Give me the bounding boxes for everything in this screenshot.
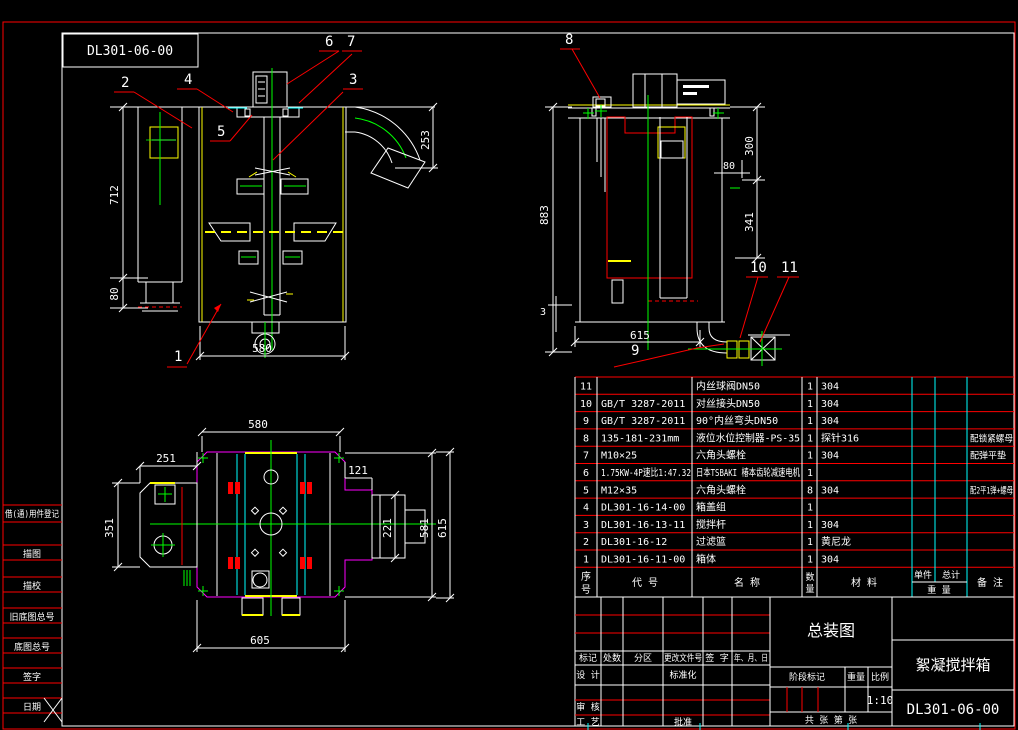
bom-header-name: 名 称 (734, 576, 760, 589)
dim-side-top: 300 (743, 136, 756, 156)
sheet-info: 共 张 第 张 (805, 714, 857, 726)
bom-cell-name: 六角头螺栓 (696, 483, 746, 496)
dim-side-gap: 3 (540, 307, 546, 318)
bom-cell-no: 8 (583, 433, 589, 444)
margin-field-label: 签字 (23, 671, 41, 683)
bom-cell-no: 3 (583, 520, 589, 531)
dim-plan-left-w: 251 (156, 452, 176, 465)
plan-view: 580 251 351 121 221 581 615 605 (103, 418, 454, 652)
bom-cell-name: 六角头螺栓 (696, 449, 746, 462)
dim-plan-right-h: 221 (381, 518, 394, 538)
callout-10: 10 (750, 260, 767, 276)
bom-header-weight: 重 量 (927, 584, 950, 596)
bom-cell-qty: 1 (807, 468, 813, 479)
bom-cell-qty: 8 (807, 485, 813, 496)
dim-side-nozzle: 80 (723, 161, 735, 172)
bom-cell-qty: 1 (807, 503, 813, 514)
drawing-canvas: 借(通)用件登记描图描校旧底图总号底图总号签字日期 DL301-06-00 (0, 0, 1018, 730)
bom-cell-code: DL301-16-13-11 (601, 520, 685, 531)
bom-cell-remark: 配弹平垫 (970, 450, 1006, 462)
weight-label: 重量 (847, 671, 865, 683)
dim-side-height: 883 (538, 205, 551, 225)
rev-header-sign: 签 字 (705, 652, 728, 664)
callout-9: 9 (631, 343, 639, 359)
bom-cell-no: 9 (583, 416, 589, 427)
bom-cell-material: 探针316 (821, 431, 859, 444)
bom-cell-no: 10 (580, 399, 592, 410)
role-approve: 批准 (674, 716, 692, 728)
margin-field-label: 底图总号 (14, 641, 50, 653)
bom-cell-no: 4 (583, 503, 589, 514)
bom-cell-material: 304 (821, 451, 839, 462)
dim-front-elbow: 253 (419, 130, 432, 150)
bom-cell-qty: 1 (807, 382, 813, 393)
bom-cell-no: 2 (583, 537, 589, 548)
bom-cell-name: 过滤篮 (696, 535, 726, 548)
bom-cell-remark: 配锁紧螺母 (970, 432, 1013, 444)
callout-5: 5 (217, 124, 225, 140)
bom-header-unit: 单件 (914, 569, 932, 581)
dim-plan-top: 580 (248, 418, 268, 431)
bom-cell-name: 箱盖组 (696, 501, 726, 514)
product-name: 絮凝搅拌箱 (915, 656, 990, 674)
callout-4: 4 (184, 72, 192, 88)
bom-cell-name: 搅拌杆 (696, 518, 726, 531)
callout-3: 3 (349, 72, 357, 88)
rev-header-zone: 分区 (634, 653, 652, 664)
bom-cell-material: 304 (821, 485, 839, 496)
bom-cell-material: 黄尼龙 (821, 535, 851, 548)
bom-cell-code: 1.75KW-4P速比1:47.32 (601, 467, 691, 479)
bom-cell-no: 5 (583, 485, 589, 496)
dim-plan-outer-h: 615 (436, 518, 449, 538)
margin-field-label: 描校 (23, 580, 41, 592)
rev-header-count: 处数 (603, 652, 621, 664)
bom-cell-code: M12×35 (601, 485, 637, 496)
callout-6: 6 (325, 34, 333, 50)
callout-2: 2 (121, 75, 129, 91)
dim-front-height: 712 (108, 185, 121, 205)
bom-cell-name: 对丝接头DN50 (696, 397, 760, 410)
dim-side-width: 615 (630, 329, 650, 342)
bom-cell-name: 90°内丝弯头DN50 (696, 414, 778, 427)
dim-side-mid: 341 (743, 212, 756, 232)
bom-cell-qty: 1 (807, 520, 813, 531)
bom-cell-code: M10×25 (601, 451, 637, 462)
callout-8: 8 (565, 32, 573, 48)
bom-cell-no: 1 (583, 555, 589, 566)
rev-header-docno: 更改文件号 (664, 652, 702, 664)
bom-cell-name: 内丝球阀DN50 (696, 380, 760, 393)
margin-field-label: 旧底图总号 (9, 611, 54, 623)
bom-header-no: 序 (581, 570, 591, 583)
rev-header-date: 年、月、日 (734, 652, 768, 664)
bolt-marks (228, 482, 312, 569)
callout-7: 7 (347, 34, 355, 50)
callout-1: 1 (174, 349, 182, 365)
dim-plan-left-h: 351 (103, 518, 116, 538)
role-design: 设 计 (576, 669, 599, 681)
stage-label: 阶段标记 (789, 671, 825, 683)
bom-cell-no: 7 (583, 451, 589, 462)
role-standard: 标准化 (669, 669, 696, 681)
bom-cell-qty: 1 (807, 537, 813, 548)
bom-cell-qty: 1 (807, 399, 813, 410)
scale-value: 1:10 (867, 694, 894, 707)
bom-cell-code: 135-181-231mm (601, 433, 679, 444)
drawing-number-top: DL301-06-00 (87, 44, 173, 59)
bom-header-total: 总计 (942, 569, 960, 581)
dim-plan-bottom: 605 (250, 634, 270, 647)
margin-field-label: 借(通)用件登记 (5, 508, 59, 520)
scale-label: 比例 (871, 671, 889, 683)
bom-header-no2: 号 (581, 584, 591, 596)
bom-header-qty2: 量 (805, 584, 814, 595)
margin-field-label: 日期 (23, 702, 41, 713)
margin-field-column: 借(通)用件登记描图描校旧底图总号底图总号签字日期 (3, 505, 62, 722)
bom-cell-code: GB/T 3287-2011 (601, 416, 685, 427)
bom-cell-material: 304 (821, 382, 839, 393)
cad-drawing-sheet: 借(通)用件登记描图描校旧底图总号底图总号签字日期 DL301-06-00 (0, 0, 1018, 730)
sheet-borders (3, 22, 1015, 730)
title-block: 标记 处数 分区 更改文件号 签 字 年、月、日 设 计 标准化 审 核 工 艺… (575, 597, 1014, 728)
role-process: 工 艺 (576, 717, 599, 728)
bom-cell-code: GB/T 3287-2011 (601, 399, 685, 410)
bom-header-material: 材 料 (851, 576, 877, 589)
callout-11: 11 (781, 260, 798, 276)
dim-plan-inner-h: 581 (418, 518, 431, 538)
dim-plan-right-w: 121 (348, 464, 368, 477)
bom-cell-qty: 1 (807, 555, 813, 566)
bom-cell-qty: 1 (807, 416, 813, 427)
drawing-number: DL301-06-00 (907, 702, 1000, 718)
side-view: 883 300 341 80 3 615 8 9 10 11 (538, 32, 799, 367)
bom-cell-material: 304 (821, 555, 839, 566)
dim-front-width: 580 (252, 342, 272, 355)
bom-cell-remark: 配2平1弹+螺母 (970, 484, 1013, 496)
role-audit: 审 核 (576, 701, 599, 713)
bom-cell-code: DL301-16-12 (601, 537, 667, 548)
bom-cell-code: DL301-16-11-00 (601, 555, 685, 566)
bom-cell-name: 日本TSBAKI 椿本齿轮减速电机 (696, 466, 800, 479)
bom-cell-name: 箱体 (696, 553, 716, 566)
drawing-number-box: DL301-06-00 (63, 34, 198, 67)
drawing-title: 总装图 (807, 621, 855, 640)
dim-front-foot: 80 (108, 287, 121, 300)
bom-header-code: 代 号 (632, 577, 658, 589)
rev-header-mark: 标记 (579, 652, 597, 664)
bom-cell-code: DL301-16-14-00 (601, 503, 685, 514)
bom-cell-qty: 1 (807, 451, 813, 462)
bom-cell-material: 304 (821, 399, 839, 410)
bom-cell-name: 液位水位控制器-PS-35 (696, 431, 800, 444)
bom-cell-material: 304 (821, 520, 839, 531)
front-view: 712 80 580 253 2 4 5 6 7 3 1 (108, 34, 438, 367)
margin-field-label: 描图 (23, 548, 41, 560)
bom-header-remark: 备 注 (977, 576, 1003, 589)
bom-cell-no: 6 (583, 468, 589, 479)
bom-cell-material: 304 (821, 416, 839, 427)
bom-cell-qty: 1 (807, 433, 813, 444)
bom-header-qty: 数 (805, 571, 814, 583)
bom-cell-no: 11 (580, 382, 592, 393)
